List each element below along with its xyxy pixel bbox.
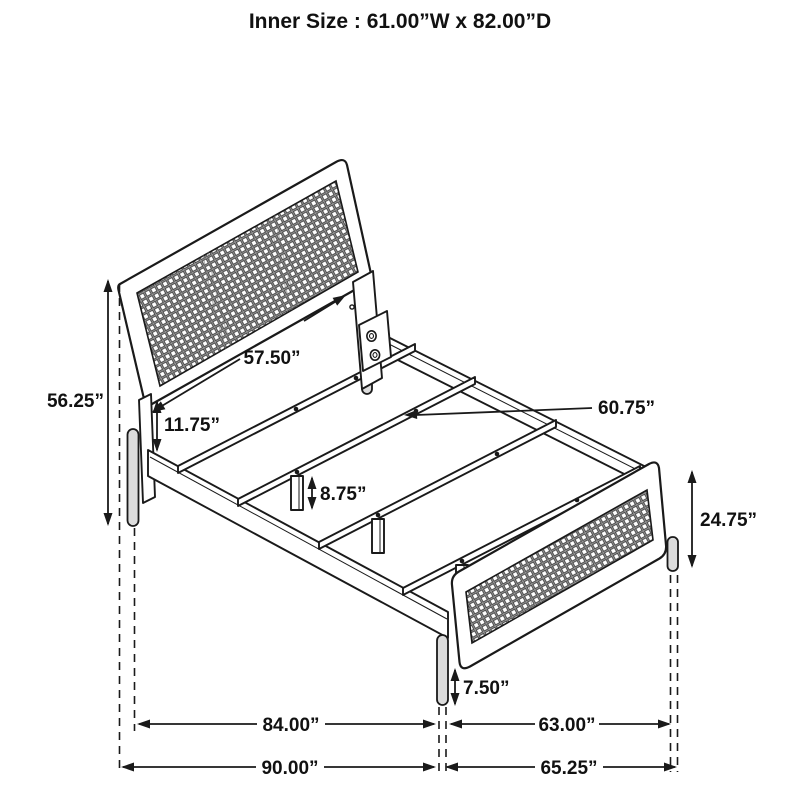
dim-headboard-height: 56.25” bbox=[47, 279, 113, 526]
headboard-left-leg bbox=[128, 429, 139, 526]
page-title: Inner Size : 61.00”W x 82.00”D bbox=[249, 10, 551, 33]
dim-label-side-rail-length: 84.00” bbox=[262, 715, 319, 736]
dim-label-slat-length: 60.75” bbox=[598, 398, 655, 419]
dim-footboard-inner-span: 63.00” bbox=[449, 715, 671, 736]
slat-screw bbox=[295, 470, 300, 475]
bed-dimension-diagram-page: Inner Size : 61.00”W x 82.00”D bbox=[0, 0, 800, 800]
dim-label-headboard-clearance: 11.75” bbox=[164, 415, 220, 436]
dim-label-headboard-width: 57.50” bbox=[243, 348, 300, 369]
dim-label-headboard-height: 56.25” bbox=[47, 391, 104, 412]
dim-footboard-height: 24.75” bbox=[688, 470, 758, 568]
slat-screw bbox=[294, 407, 299, 412]
dim-label-footboard-inner-span: 63.00” bbox=[538, 715, 595, 736]
dim-overall-depth: 90.00” bbox=[121, 758, 436, 779]
dim-overall-width: 65.25” bbox=[445, 758, 677, 779]
bed-dimension-diagram: Inner Size : 61.00”W x 82.00”D bbox=[0, 0, 800, 800]
headboard-left-post bbox=[139, 394, 155, 503]
dim-label-footboard-leg-height: 7.50” bbox=[463, 678, 509, 699]
dim-center-leg-height: 8.75” bbox=[308, 476, 367, 510]
slat-screw bbox=[495, 452, 500, 457]
dim-label-center-leg-height: 8.75” bbox=[320, 484, 366, 505]
footboard bbox=[452, 462, 666, 668]
dim-label-overall-width: 65.25” bbox=[540, 758, 597, 779]
slat-screw bbox=[354, 376, 359, 381]
dim-label-overall-depth: 90.00” bbox=[261, 758, 318, 779]
footboard-near-leg bbox=[437, 635, 448, 705]
slat-screw bbox=[575, 498, 580, 503]
center-support-leg bbox=[372, 519, 384, 553]
dim-footboard-leg-height: 7.50” bbox=[451, 668, 510, 706]
post-screw-hole bbox=[350, 305, 354, 309]
slat-screw bbox=[376, 513, 381, 518]
dim-side-rail-length: 84.00” bbox=[137, 715, 436, 736]
dim-label-footboard-height: 24.75” bbox=[700, 510, 757, 531]
center-support-leg bbox=[291, 476, 303, 510]
bracket-hole bbox=[370, 350, 379, 360]
footboard-far-leg bbox=[668, 537, 679, 571]
bracket-hole bbox=[367, 331, 376, 341]
slat-screw bbox=[460, 559, 465, 564]
